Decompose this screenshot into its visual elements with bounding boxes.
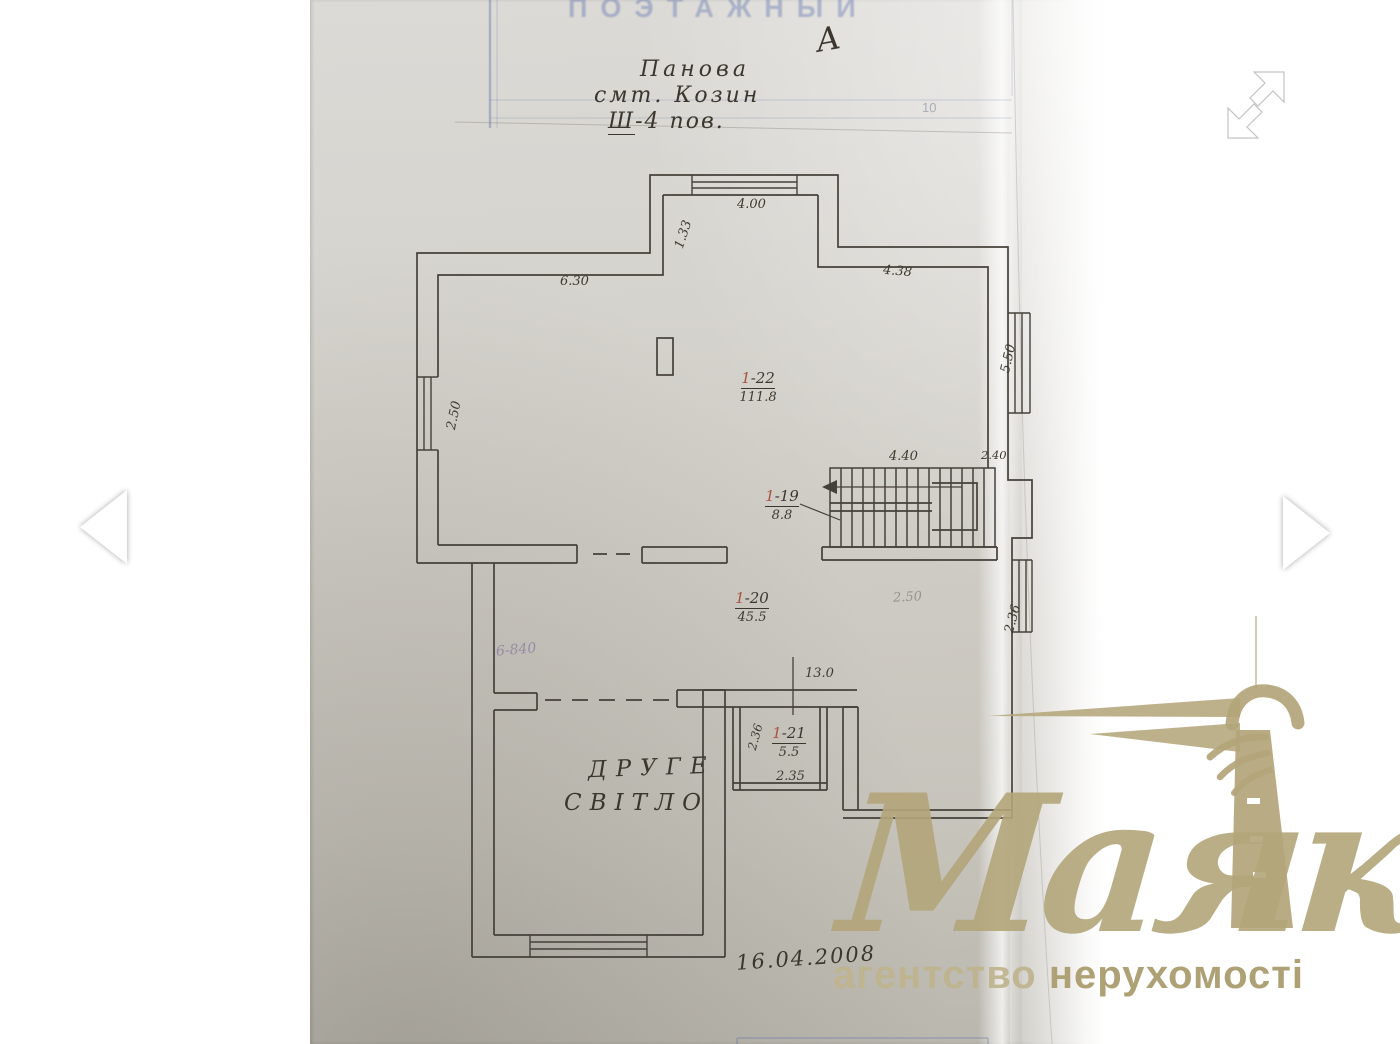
dim-wall-top-right: 4.38 xyxy=(882,263,912,280)
room-label-1-22: 1-22 111.8 xyxy=(733,369,783,405)
annotation-floor-prefix: Ш xyxy=(608,109,635,135)
second-light-label-line1: ДРУГЕ xyxy=(588,753,717,783)
dim-opening: 13.0 xyxy=(805,666,834,681)
window-left xyxy=(417,377,438,450)
lighthouse-cap xyxy=(1232,691,1298,724)
dim-stair-corner: 2.40 xyxy=(981,448,1007,462)
room-area: 8.8 xyxy=(761,508,803,523)
watermark-tagline-word2: нерухомості xyxy=(1049,953,1304,997)
room-number-suffix: -21 xyxy=(782,724,806,742)
window-bottom xyxy=(530,935,647,957)
dim-stair-width: 4.40 xyxy=(889,449,918,464)
room-area: 5.5 xyxy=(766,745,812,760)
stamp-corner-number: 10 xyxy=(922,100,937,115)
expand-arrow-sw xyxy=(1228,104,1262,138)
room-number-prefix: 1 xyxy=(772,724,782,742)
dim-room21-width: 2.35 xyxy=(776,769,805,784)
room-label-1-19: 1-19 8.8 xyxy=(761,487,803,523)
dim-wall-top-left: 6.30 xyxy=(560,274,589,289)
expand-arrow-ne xyxy=(1250,72,1284,106)
watermark-brand: Маяк xyxy=(834,770,1400,960)
room-area: 45.5 xyxy=(727,610,777,625)
room-label-1-20: 1-20 45.5 xyxy=(727,589,777,625)
annotation-floor: Ш-4 пов. xyxy=(608,109,725,134)
annotation-settlement: смт. Козин xyxy=(594,83,760,108)
annotation-street: Панова xyxy=(640,57,750,82)
photo-viewer: ПОЭТАЖНЫЙ 10 А Панова смт. Козин Ш-4 пов… xyxy=(0,0,1400,1044)
dim-height-mark: 2.50 xyxy=(893,589,923,605)
room-label-1-21: 1-21 5.5 xyxy=(766,724,812,760)
pillar xyxy=(657,338,673,375)
room-number-prefix: 1 xyxy=(765,487,775,505)
room-number-suffix: -20 xyxy=(745,589,769,607)
room-area: 111.8 xyxy=(733,390,783,405)
chevron-left-icon[interactable] xyxy=(80,490,127,564)
fullscreen-expand-icon[interactable] xyxy=(1222,66,1290,144)
watermark-tagline: агентство нерухомості xyxy=(833,953,1304,998)
light-beam-upper xyxy=(988,698,1240,717)
plan-openings xyxy=(545,554,672,700)
dim-bay-width: 4.00 xyxy=(737,197,766,212)
staircase xyxy=(822,468,995,547)
room-number-prefix: 1 xyxy=(741,369,751,387)
chevron-right-icon[interactable] xyxy=(1283,496,1330,570)
room-number-suffix: -22 xyxy=(751,369,775,387)
annotation-floor-rest: -4 пов. xyxy=(635,109,725,134)
window-bay xyxy=(692,175,797,195)
watermark-tagline-word1: агентство xyxy=(833,953,1037,997)
second-light-label-line2: СВІТЛО xyxy=(564,790,709,816)
room-number-prefix: 1 xyxy=(735,589,745,607)
room-number-suffix: -19 xyxy=(775,487,799,505)
